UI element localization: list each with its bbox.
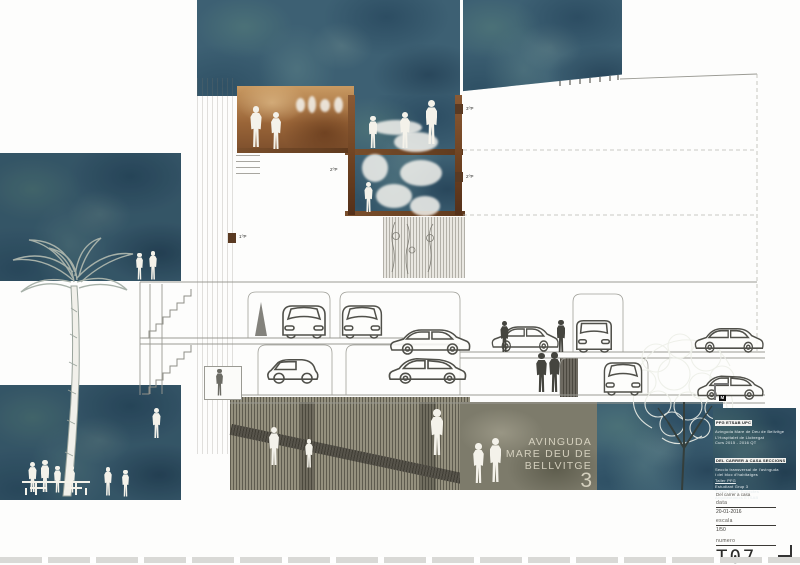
fine-print-tab: PFG ETSAB UPC <box>715 420 752 426</box>
picnic-table <box>16 476 96 496</box>
title-block: M ARQ ETSAB PFG ETSAB UPC Avinguda Mare … <box>712 382 798 560</box>
human-figure <box>397 112 413 149</box>
human-figure <box>266 427 282 466</box>
human-figure <box>470 443 487 484</box>
date-value: 20-01-2016 <box>716 509 796 515</box>
human-figure <box>554 320 568 353</box>
human-figure <box>486 438 505 483</box>
fine-print-l1: Avinguda Mare de Deu de Bellvitge <box>715 429 795 435</box>
human-figure <box>303 439 315 468</box>
human-figure <box>546 352 563 393</box>
human-figure <box>150 408 163 439</box>
number-label: numero <box>716 538 776 546</box>
project-title: Del carrer a casa <box>716 492 796 497</box>
human-figure <box>427 409 447 456</box>
human-figure <box>268 112 284 150</box>
human-figure <box>147 251 159 280</box>
architectural-section-sheet: AVINGUDA MARE DEU DE BELLVITGE 3 3ºP 2ºP… <box>0 0 800 565</box>
human-figure <box>102 467 114 496</box>
scale-label: escala <box>716 518 776 526</box>
logo-m: M <box>719 395 726 401</box>
human-figure <box>362 182 375 213</box>
human-figure <box>134 253 145 280</box>
date-label: data <box>716 500 776 508</box>
human-figure <box>214 369 225 396</box>
human-figure <box>498 321 511 353</box>
human-figure <box>422 100 441 145</box>
human-figure <box>120 470 131 497</box>
title-block-fine-print: PFG ETSAB UPC Avinguda Mare de Deu de Be… <box>715 411 795 500</box>
figure-layer <box>0 0 800 565</box>
fine-print-header: DEL CARRER A CASA SECCIONS <box>715 458 786 464</box>
human-figure <box>247 106 265 148</box>
scale-value: 1/50 <box>716 527 796 533</box>
sheet-bottom-edge <box>0 557 800 563</box>
human-figure <box>366 116 380 149</box>
corner-bracket-icon <box>778 545 792 557</box>
